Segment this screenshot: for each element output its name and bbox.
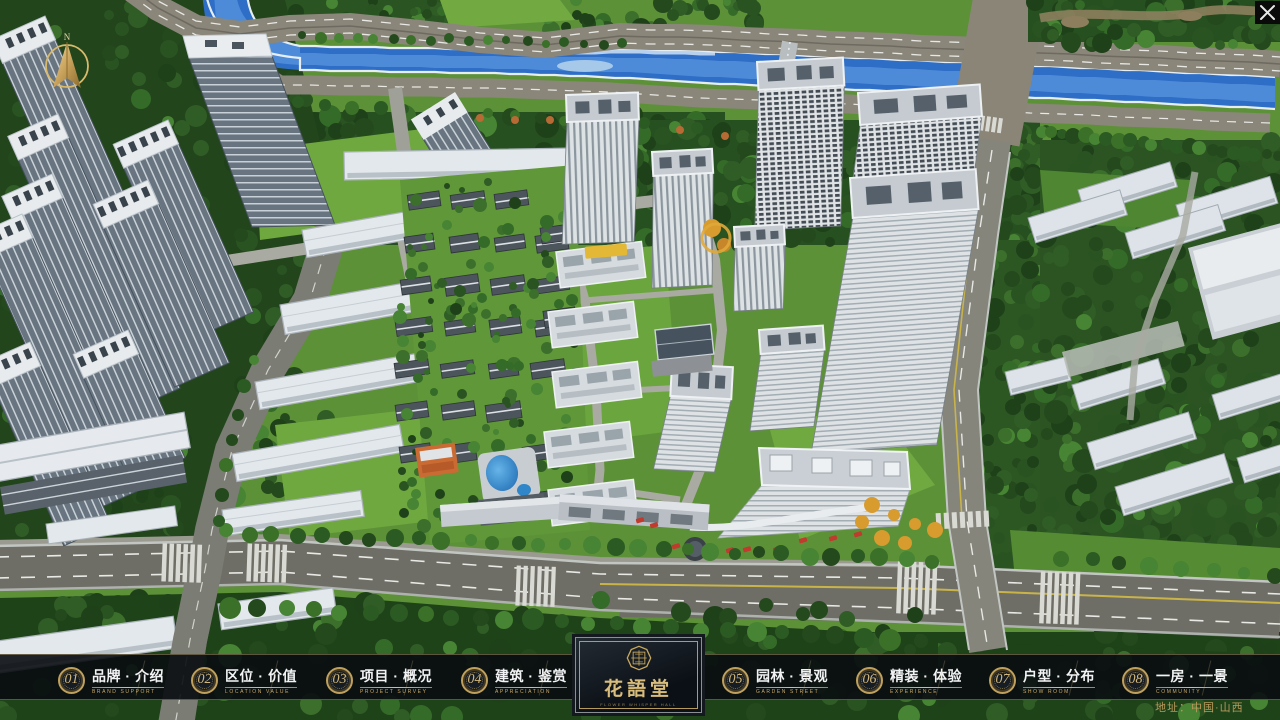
svg-text:N: N <box>64 32 71 42</box>
